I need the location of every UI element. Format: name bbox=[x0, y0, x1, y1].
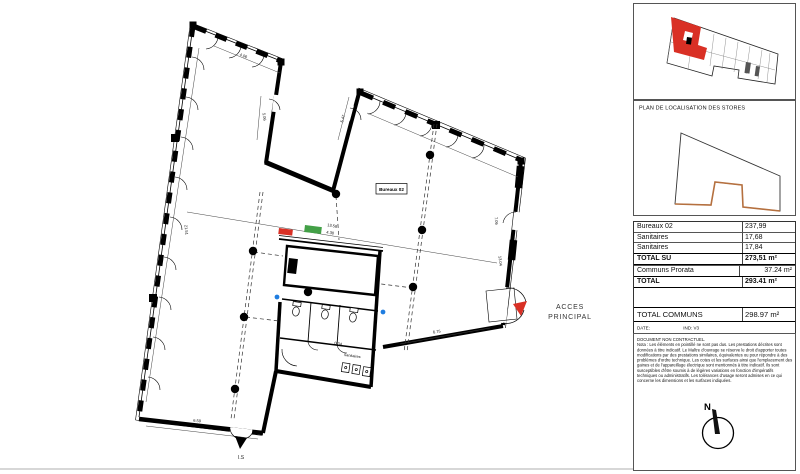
dim-left-wall: 21.51 bbox=[183, 225, 189, 236]
technical-core bbox=[284, 246, 378, 295]
blue-supply-marker bbox=[275, 295, 280, 300]
dim-left-inner: 5.06 bbox=[261, 113, 267, 122]
dim-mid-sub: 4.30 bbox=[326, 229, 335, 235]
window-swing-arcs bbox=[148, 36, 516, 390]
table-row: Sanitaires 17,68 bbox=[634, 232, 795, 243]
dim-right-wall-upper: 7.06 bbox=[494, 217, 500, 226]
access-label-line2: PRINCIPAL bbox=[548, 314, 592, 321]
dim-bottom-right: 6.75 bbox=[432, 328, 441, 334]
wc-fixture bbox=[291, 302, 358, 323]
index-value: IND: V3 NOTAIRE bbox=[668, 322, 714, 328]
row-label: Sanitaires bbox=[634, 243, 742, 253]
row-label: TOTAL COMMUNS bbox=[634, 308, 742, 321]
table-row: Bureaux 02 237,99 bbox=[634, 222, 795, 232]
north-arrow-icon bbox=[712, 409, 720, 434]
date-value: DATE: 01/07/2025 bbox=[634, 322, 668, 328]
row-label: Sanitaires bbox=[634, 233, 742, 243]
table-row: Communs Prorata 37.24 m² bbox=[634, 265, 795, 276]
row-value: 17,84 bbox=[742, 243, 795, 253]
row-value: 237,99 bbox=[742, 222, 795, 232]
washbasin-fixture bbox=[341, 363, 371, 377]
solid-walls bbox=[139, 62, 521, 433]
access-label-line1: ACCES bbox=[556, 304, 584, 311]
duct-shaft bbox=[287, 258, 298, 274]
window-walls bbox=[139, 26, 521, 417]
table-row: Sanitaires 17,84 bbox=[634, 242, 795, 253]
compass: N bbox=[634, 398, 795, 468]
compass-label: N bbox=[704, 402, 711, 413]
row-value: 37.24 m² bbox=[739, 266, 795, 276]
sanitaires-label: Sanitaires bbox=[343, 353, 360, 359]
dim-bottom-left: 6.59 bbox=[193, 418, 202, 424]
notes-box: DOCUMENT NON CONTRACTUEL. Nota : Les élé… bbox=[633, 333, 796, 471]
row-value: 273,51 m² bbox=[742, 254, 795, 264]
row-value: 17,68 bbox=[742, 233, 795, 243]
exit-arrow-icon bbox=[235, 436, 247, 449]
sanitary-block bbox=[275, 225, 386, 377]
row-label: Bureaux 02 bbox=[634, 222, 742, 232]
surface-table: Bureaux 02 237,99 Sanitaires 17,68 Sanit… bbox=[633, 221, 796, 335]
row-label: Communs Prorata bbox=[634, 266, 739, 276]
dim-right-wall-lower: 13.04 bbox=[497, 256, 503, 267]
row-value: 293.41 m² bbox=[742, 277, 795, 287]
table-spacer bbox=[634, 288, 795, 307]
exit-label: I.S bbox=[238, 455, 245, 461]
total-communs-row: TOTAL COMMUNS 298.97 m² bbox=[634, 307, 795, 322]
dim-mid-main: 13.58 bbox=[327, 222, 338, 229]
dim-right-wing-inner: 5.47 bbox=[339, 113, 346, 123]
row-value: 298.97 m² bbox=[742, 308, 795, 321]
drawing-sheet: ACCES PRINCIPAL I.S Bureaux 02 Sanitaire… bbox=[0, 0, 800, 474]
facade-outlines bbox=[136, 23, 526, 436]
stores-title: PLAN DE LOCALISATION DES STORES bbox=[639, 105, 794, 111]
blue-supply-marker bbox=[381, 310, 386, 315]
disclaimer: DOCUMENT NON CONTRACTUEL. Nota : Les élé… bbox=[637, 337, 793, 383]
table-row-total: TOTAL 293.41 m² bbox=[634, 276, 795, 288]
scan-edge-line bbox=[0, 468, 633, 470]
keyplan-box bbox=[633, 3, 796, 100]
disclaimer-body: Nota : Les éléments en pointillé ne sont… bbox=[637, 342, 792, 383]
unit-label: Bureaux 02 bbox=[379, 187, 404, 192]
stores-box: PLAN DE LOCALISATION DES STORES bbox=[633, 100, 796, 216]
row-label: TOTAL SU bbox=[634, 254, 742, 264]
table-row-total-su: TOTAL SU 273,51 m² bbox=[634, 253, 795, 265]
glazing-lines bbox=[139, 26, 521, 417]
row-label: TOTAL bbox=[634, 277, 742, 287]
entrance-arrow-icon bbox=[513, 301, 527, 316]
green-utility-marker bbox=[304, 225, 322, 234]
stores-outline bbox=[634, 114, 795, 214]
keyplan bbox=[634, 4, 795, 99]
